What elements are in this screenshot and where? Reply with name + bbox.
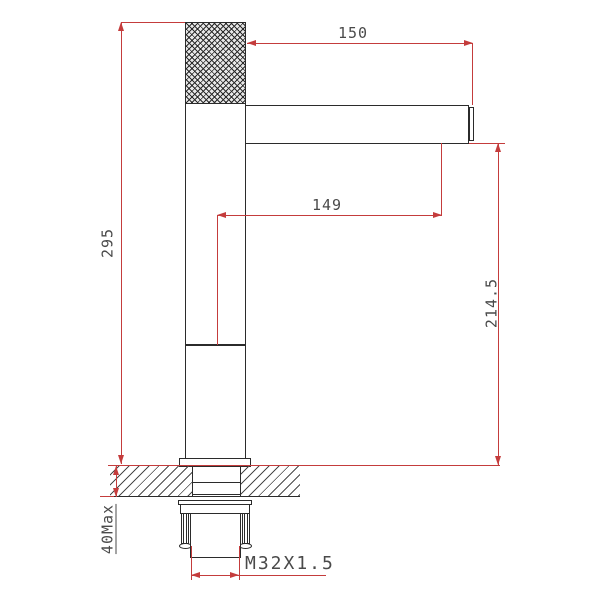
dim-40max-arrow-down [113, 488, 119, 497]
dim-2145-arrow-up [495, 143, 501, 152]
threaded-pipe [190, 513, 241, 558]
dim-label-295: 295 [101, 228, 116, 258]
dim-label-150: 150 [338, 26, 368, 41]
spout-tip-cap [469, 107, 474, 141]
spout-bottom-edge [245, 143, 469, 144]
dim-295-arrow-down [118, 455, 124, 464]
dim-label-214-5: 214.5 [485, 278, 500, 328]
dim-149-line [217, 215, 442, 216]
dim-m32-arrow-left [191, 572, 200, 578]
dim-150-line [247, 43, 473, 44]
spout-top-edge [245, 105, 469, 106]
shank-thread-line-2 [192, 494, 241, 495]
countertop-hatch-left [110, 466, 192, 497]
body-joint-line [185, 344, 246, 346]
dim-40max-arrow-up [113, 466, 119, 475]
dim-295-line [121, 22, 122, 464]
dim-295-extension-top [121, 22, 185, 23]
technical-drawing-canvas: 150 149 295 214.5 40Max M32X1.5 [0, 0, 600, 600]
body-right-edge [245, 104, 246, 458]
dim-295-arrow-up [118, 22, 124, 31]
handle-knurl [185, 22, 246, 104]
dim-label-40max: 40Max [101, 504, 116, 554]
dim-2145-arrow-down [495, 456, 501, 465]
dim-150-extension [472, 43, 473, 105]
dim-label-149: 149 [312, 198, 342, 213]
dim-m32-arrow-right [230, 572, 239, 578]
countertop-hatch-right [240, 466, 300, 497]
dim-149-extension-right [441, 143, 442, 216]
dim-150-arrow-right [464, 40, 473, 46]
dim-149-arrow-right [433, 212, 442, 218]
dim-label-m32x15: M32X1.5 [245, 555, 335, 573]
countertop-bottom-edge [110, 496, 300, 497]
body-left-edge [185, 104, 186, 458]
mounting-stud-right-inner [244, 513, 248, 544]
dim-40max-extension-bottom [100, 496, 114, 497]
dim-149-center-axis [217, 215, 218, 345]
countertop-reference-line [108, 465, 500, 466]
mounting-stud-left-inner [183, 513, 187, 544]
shank-thread-line-1 [192, 482, 241, 483]
dim-150-arrow-left [247, 40, 256, 46]
dim-m32-line [191, 575, 326, 576]
dim-149-arrow-left [217, 212, 226, 218]
